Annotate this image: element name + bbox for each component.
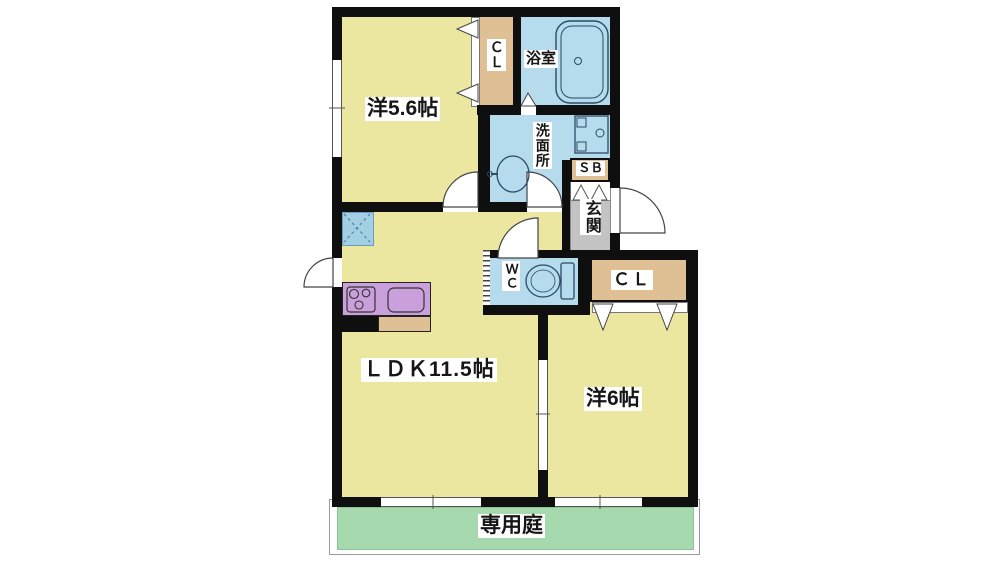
shoebox-label: ＳＢ xyxy=(576,161,605,176)
door-arc-room1 xyxy=(443,172,478,207)
fixtures-overlay xyxy=(0,0,1000,562)
stove-icon xyxy=(355,301,363,309)
wc-label: ＷＣ xyxy=(502,261,520,291)
door-arc-front xyxy=(620,188,665,233)
washer-pan-icon xyxy=(575,116,608,153)
closet1-label: ＣＬ xyxy=(487,39,506,71)
door-arc-washroom xyxy=(527,172,562,207)
washer-pan-icon xyxy=(596,129,604,137)
bathtub-drain-icon xyxy=(575,58,582,65)
floor-plan: 洋5.6帖 ＬＤＫ11.5帖 洋6帖 専用庭 浴室 洗面所 玄関 ＷＣ ＣＬ Ｃ… xyxy=(0,0,1000,562)
bath-folding-door-icon xyxy=(521,93,536,106)
entrance-step-icon xyxy=(573,185,589,200)
stove-icon xyxy=(350,290,359,299)
closet2-label: ＣＬ xyxy=(611,270,653,290)
washer-pan-icon xyxy=(577,118,586,127)
closet2-door-icon xyxy=(657,304,677,330)
stove-icon xyxy=(362,289,370,297)
sink-icon xyxy=(497,156,529,192)
room-ldk-label: ＬＤＫ11.5帖 xyxy=(361,358,497,382)
closet2-door-icon xyxy=(593,304,613,330)
kitchen-sink-icon xyxy=(388,288,424,312)
closet1-door-icon xyxy=(457,84,478,102)
bathroom-label: 浴室 xyxy=(524,50,558,68)
closet1-door-icon xyxy=(457,20,478,38)
room-western2-label: 洋6帖 xyxy=(584,387,642,411)
garden-label: 専用庭 xyxy=(478,514,545,538)
toilet-icon xyxy=(531,270,555,292)
washer-pan-icon xyxy=(577,142,586,151)
entrance-label: 玄関 xyxy=(580,199,601,235)
room-western1-label: 洋5.6帖 xyxy=(365,97,440,121)
bathtub-icon xyxy=(561,26,603,98)
bathtub-icon xyxy=(556,21,608,103)
door-arc-service xyxy=(304,258,333,287)
washroom-label: 洗面所 xyxy=(533,122,552,169)
toilet-icon xyxy=(561,263,574,299)
door-arc-wc xyxy=(498,218,538,258)
entrance-step-icon xyxy=(591,185,607,200)
